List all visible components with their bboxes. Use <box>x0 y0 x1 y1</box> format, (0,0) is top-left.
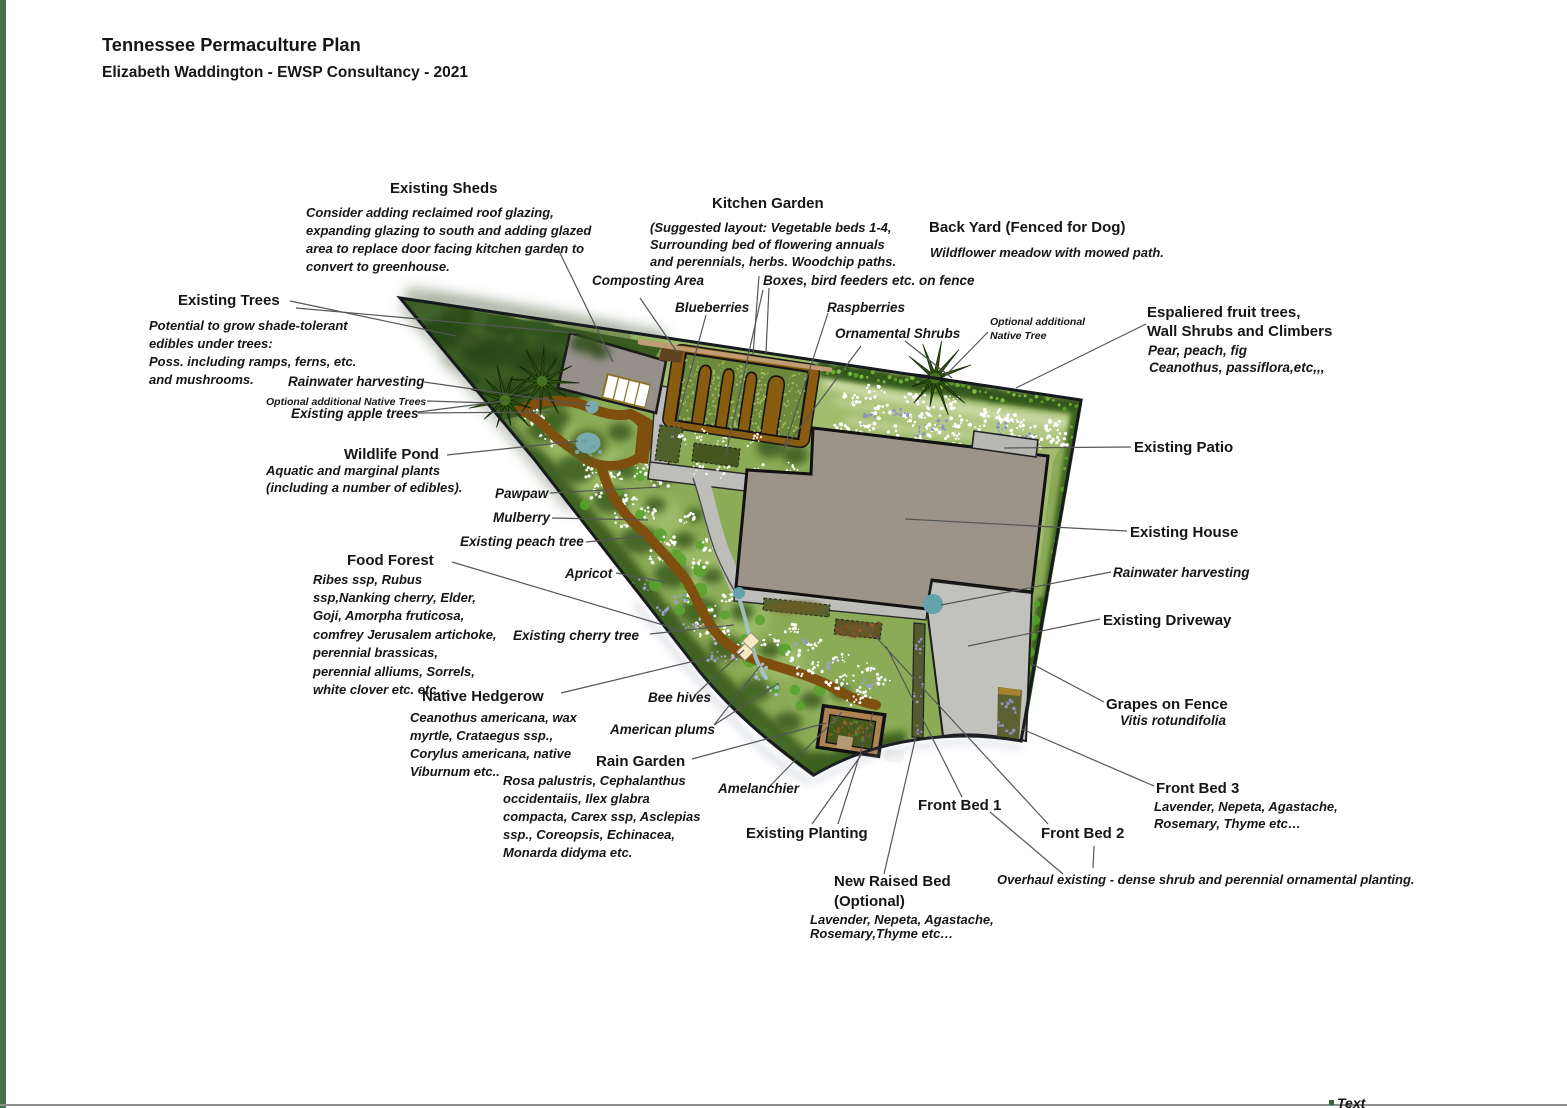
svg-text:Front Bed 1: Front Bed 1 <box>918 797 1001 814</box>
svg-text:Potential to grow shade-tolera: Potential to grow shade-tolerant <box>149 318 348 333</box>
svg-text:Mulberry: Mulberry <box>493 510 552 525</box>
svg-text:Existing Driveway: Existing Driveway <box>1103 612 1232 629</box>
svg-text:(Optional): (Optional) <box>834 893 905 910</box>
svg-text:edibles under trees:: edibles under trees: <box>149 336 273 351</box>
svg-text:Food Forest: Food Forest <box>347 552 434 569</box>
svg-text:Existing Planting: Existing Planting <box>746 825 868 842</box>
svg-text:Overhaul existing - dense shru: Overhaul existing - dense shrub and pere… <box>997 872 1415 887</box>
svg-text:Boxes, bird feeders etc. on fe: Boxes, bird feeders etc. on fence <box>763 273 975 288</box>
svg-text:(including a number of edibles: (including a number of edibles). <box>266 480 462 495</box>
svg-text:Kitchen Garden: Kitchen Garden <box>712 195 824 212</box>
svg-text:area to replace door facing ki: area to replace door facing kitchen gard… <box>306 241 584 256</box>
svg-text:Tennessee Permaculture Plan: Tennessee Permaculture Plan <box>102 34 361 55</box>
svg-text:comfrey Jerusalem artichoke,: comfrey Jerusalem artichoke, <box>313 627 497 642</box>
svg-text:Apricot: Apricot <box>564 566 613 581</box>
svg-text:Amelanchier: Amelanchier <box>717 781 800 796</box>
svg-text:Corylus americana, native: Corylus americana, native <box>410 746 571 761</box>
svg-text:convert to greenhouse.: convert to greenhouse. <box>306 259 450 274</box>
svg-text:Existing peach tree: Existing peach tree <box>460 534 584 549</box>
svg-text:Rosa palustris, Cephalanthus: Rosa palustris, Cephalanthus <box>503 773 686 788</box>
svg-text:Native Hedgerow: Native Hedgerow <box>422 688 544 705</box>
svg-text:Monarda didyma etc.: Monarda didyma etc. <box>503 845 632 860</box>
svg-text:Pear, peach, fig: Pear, peach, fig <box>1148 343 1248 358</box>
svg-text:Existing apple trees: Existing apple trees <box>291 406 419 421</box>
svg-text:Composting Area: Composting Area <box>592 273 704 288</box>
svg-text:myrtle, Crataegus ssp.,: myrtle, Crataegus ssp., <box>410 728 553 743</box>
svg-text:Front Bed 3: Front Bed 3 <box>1156 780 1239 797</box>
svg-text:perennial brassicas,: perennial brassicas, <box>312 645 438 660</box>
svg-text:Surrounding bed of flowering a: Surrounding bed of flowering annuals <box>650 237 885 252</box>
svg-text:Pawpaw: Pawpaw <box>495 486 550 501</box>
svg-text:Ceanothus americana, wax: Ceanothus americana, wax <box>410 710 578 725</box>
svg-text:Ornamental Shrubs: Ornamental Shrubs <box>835 326 961 341</box>
svg-text:Rain Garden: Rain Garden <box>596 753 685 770</box>
svg-text:and mushrooms.: and mushrooms. <box>149 372 254 387</box>
svg-text:Rainwater harvesting: Rainwater harvesting <box>1113 565 1250 580</box>
svg-text:Bee hives: Bee hives <box>648 690 712 705</box>
svg-text:ssp,Nanking cherry, Elder,: ssp,Nanking cherry, Elder, <box>313 590 476 605</box>
svg-text:Ribes ssp, Rubus: Ribes ssp, Rubus <box>313 572 422 587</box>
svg-text:Vitis rotundifolia: Vitis rotundifolia <box>1120 713 1226 728</box>
svg-text:Back Yard (Fenced for Dog): Back Yard (Fenced for Dog) <box>929 219 1125 236</box>
svg-text:Wildlife Pond: Wildlife Pond <box>344 446 439 463</box>
svg-text:Goji, Amorpha fruticosa,: Goji, Amorpha fruticosa, <box>313 608 464 623</box>
svg-text:Espaliered fruit trees,: Espaliered fruit trees, <box>1147 304 1300 321</box>
svg-text:Ceanothus, passiflora,etc,,,: Ceanothus, passiflora,etc,,, <box>1149 360 1325 375</box>
svg-text:expanding glazing to south and: expanding glazing to south and adding gl… <box>306 223 592 238</box>
svg-text:Blueberries: Blueberries <box>675 300 750 315</box>
svg-text:occidentaiis, Ilex glabra: occidentaiis, Ilex glabra <box>503 791 650 806</box>
svg-text:New Raised Bed: New Raised Bed <box>834 873 951 890</box>
svg-text:Text: Text <box>1337 1095 1367 1108</box>
svg-text:Consider adding reclaimed roof: Consider adding reclaimed roof glazing, <box>306 205 554 220</box>
svg-text:Native Tree: Native Tree <box>990 330 1047 342</box>
svg-text:Front Bed 2: Front Bed 2 <box>1041 825 1124 842</box>
svg-text:perennial alliums, Sorrels,: perennial alliums, Sorrels, <box>312 664 475 679</box>
svg-text:ssp., Coreopsis, Echinacea,: ssp., Coreopsis, Echinacea, <box>503 827 675 842</box>
svg-text:Existing Patio: Existing Patio <box>1134 439 1233 456</box>
svg-text:(Suggested layout: Vegetable b: (Suggested layout: Vegetable beds 1-4, <box>650 220 892 235</box>
svg-text:Existing cherry tree: Existing cherry tree <box>513 628 640 643</box>
svg-text:Rosemary, Thyme etc…: Rosemary, Thyme etc… <box>1154 816 1301 831</box>
svg-text:Existing Sheds: Existing Sheds <box>390 180 498 197</box>
svg-text:Raspberries: Raspberries <box>827 300 906 315</box>
svg-text:compacta, Carex ssp, Asclepias: compacta, Carex ssp, Asclepias <box>503 809 701 824</box>
svg-text:Aquatic and marginal plants: Aquatic and marginal plants <box>265 463 440 478</box>
svg-text:Rainwater harvesting: Rainwater harvesting <box>288 374 425 389</box>
svg-text:Wildflower meadow with mowed p: Wildflower meadow with mowed path. <box>930 245 1164 260</box>
svg-text:Viburnum etc..: Viburnum etc.. <box>410 764 500 779</box>
svg-text:Rosemary,Thyme etc…: Rosemary,Thyme etc… <box>810 926 953 941</box>
svg-text:Grapes on Fence: Grapes on Fence <box>1106 696 1228 713</box>
svg-text:and perennials, herbs. Woodchi: and perennials, herbs. Woodchip paths. <box>650 254 896 269</box>
svg-text:Lavender, Nepeta, Agastache,: Lavender, Nepeta, Agastache, <box>810 912 994 927</box>
svg-text:Optional additional: Optional additional <box>990 316 1086 328</box>
svg-text:Lavender, Nepeta, Agastache,: Lavender, Nepeta, Agastache, <box>1154 799 1338 814</box>
svg-text:Elizabeth Waddington - EWSP Co: Elizabeth Waddington - EWSP Consultancy … <box>102 64 468 81</box>
svg-text:Existing Trees: Existing Trees <box>178 292 280 309</box>
svg-text:American plums: American plums <box>609 722 716 737</box>
svg-text:Wall Shrubs and Climbers: Wall Shrubs and Climbers <box>1147 323 1332 340</box>
svg-text:Poss. including ramps, ferns,: Poss. including ramps, ferns, etc. <box>149 354 356 369</box>
svg-text:Existing House: Existing House <box>1130 524 1238 541</box>
